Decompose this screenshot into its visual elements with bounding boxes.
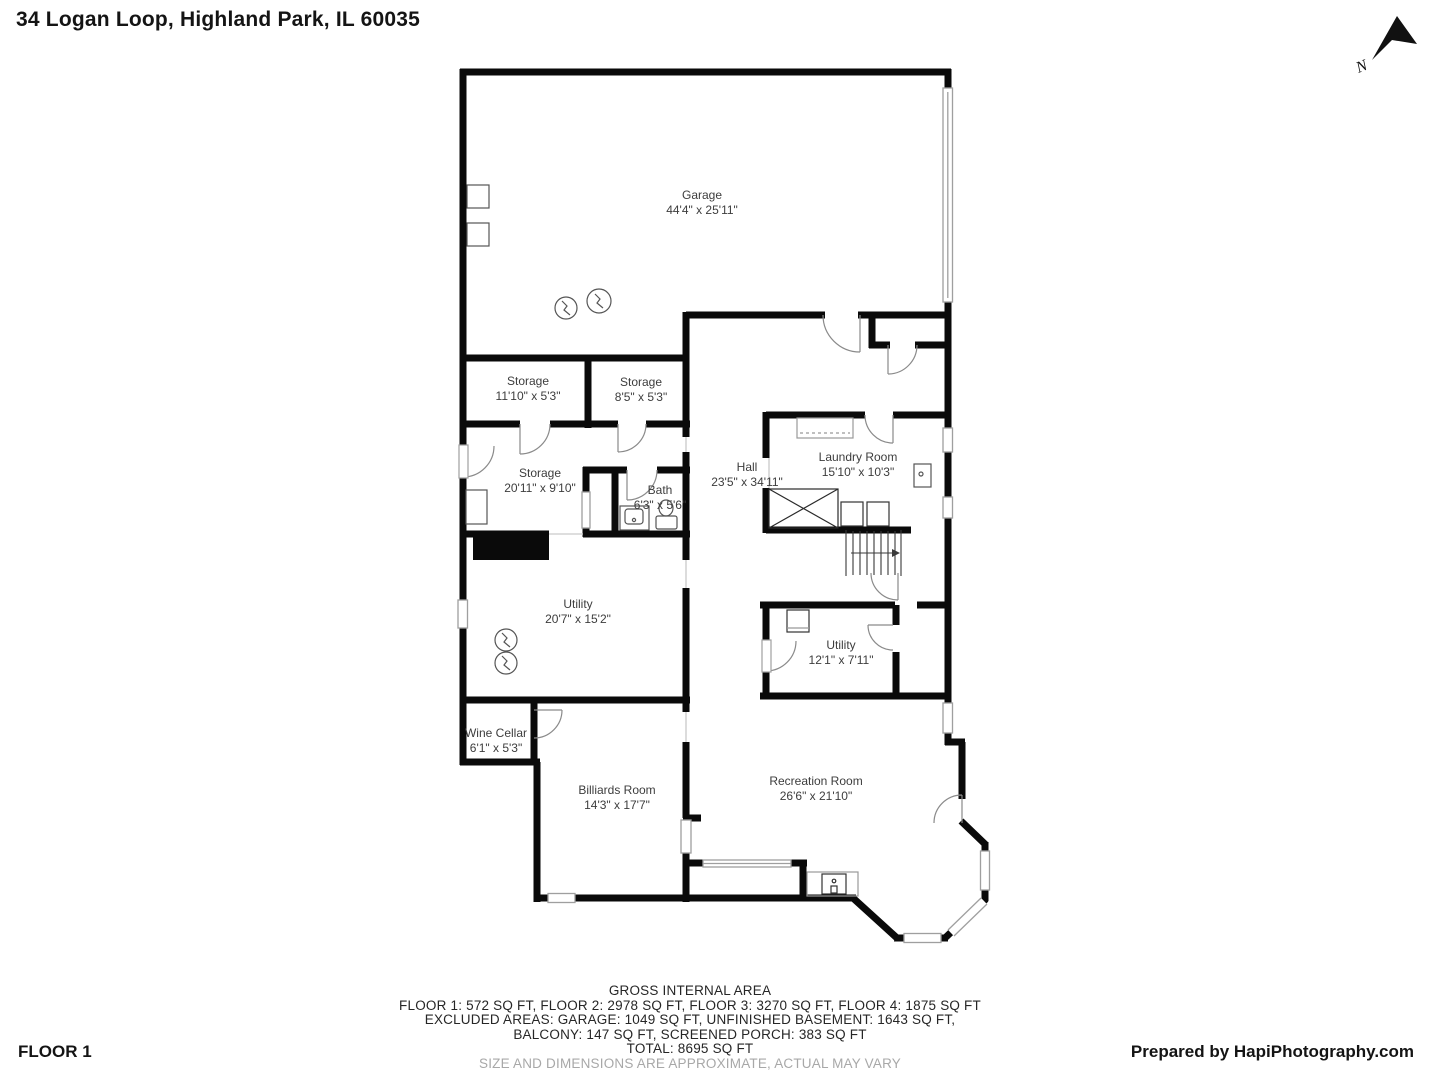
walls [460,69,986,938]
door-laundry [865,415,893,443]
room-label-wine-cellar: Wine Cellar [465,726,527,740]
door-wine-cellar [534,710,562,738]
window [981,851,990,890]
door-storage-2 [618,424,646,452]
area-summary-title: GROSS INTERNAL AREA [90,984,1290,999]
laundry-counter [797,418,853,438]
door-storage-1 [520,424,550,454]
room-label-laundry: Laundry Room [819,450,898,464]
stairs-direction-arrow [892,549,900,557]
staircase [846,530,901,576]
room-labels: Garage 44'4" x 25'11" Storage 11'10" x 5… [465,188,897,812]
room-dims-garage: 44'4" x 25'11" [666,203,738,217]
room-label-utility-2: Utility [826,638,855,652]
room-label-billiards: Billiards Room [578,783,655,797]
area-summary-total: TOTAL: 8695 SQ FT [90,1042,1290,1057]
floor-label: FLOOR 1 [18,1042,92,1062]
door-garage-hall [823,315,860,352]
room-dims-recreation: 26'6" x 21'10" [780,789,853,803]
garage-post [467,223,489,246]
dryer [867,502,889,526]
laundry-hatch [769,489,838,528]
closet-opening [582,492,590,528]
room-dims-storage-1: 11'10" x 5'3" [496,389,561,403]
window [943,703,953,733]
window [548,894,575,903]
wet-bar [807,872,858,896]
room-label-recreation: Recreation Room [769,774,862,788]
room-label-hall: Hall [737,460,758,474]
shelf-unit [466,490,487,524]
room-dims-utility-1: 20'7" x 15'2" [545,612,611,626]
pocket-door [681,820,691,853]
door-vestibule [888,345,917,374]
door-leaf [762,640,771,672]
door-leaf [459,445,468,478]
area-summary-disclaimer: SIZE AND DIMENSIONS ARE APPROXIMATE, ACT… [90,1057,1290,1072]
room-dims-wine-cellar: 6'1" x 5'3" [470,741,522,755]
room-label-storage-3: Storage [519,466,561,480]
credit: Prepared by HapiPhotography.com [1131,1042,1414,1062]
area-summary-excluded-2: BALCONY: 147 SQ FT, SCREENED PORCH: 383 … [90,1028,1290,1043]
area-summary-floors: FLOOR 1: 572 SQ FT, FLOOR 2: 2978 SQ FT,… [90,999,1290,1014]
door-recreation [934,795,962,823]
north-label: N [1353,57,1371,78]
area-summary-excluded-1: EXCLUDED AREAS: GARAGE: 1049 SQ FT, UNFI… [90,1013,1290,1028]
garage-post [467,185,489,208]
room-dims-billiards: 14'3" x 17'7" [584,798,650,812]
room-dims-hall: 23'5" x 34'11" [711,475,783,489]
room-label-garage: Garage [682,188,722,202]
room-dims-storage-3: 20'11" x 9'10" [504,481,576,495]
chimney-block [473,534,549,560]
window [904,934,941,943]
appliance [787,610,809,632]
room-label-bath: Bath [648,483,673,497]
thresholds [549,91,948,742]
washer [841,502,863,526]
window [943,497,953,518]
room-dims-bath: 6'3" x 5'6" [634,498,686,512]
floor-plan-canvas: Garage 44'4" x 25'11" Storage 11'10" x 5… [0,0,1440,1080]
room-label-utility-1: Utility [563,597,592,611]
window [458,600,468,628]
room-label-storage-2: Storage [620,375,662,389]
bay-diagonal-window [948,898,987,936]
room-dims-utility-2: 12'1" x 7'11" [809,653,874,667]
north-arrow-icon: N [1353,16,1417,77]
room-dims-storage-2: 8'5" x 5'3" [615,390,667,404]
door-stairs [871,573,898,600]
room-label-storage-1: Storage [507,374,549,388]
window [943,428,953,452]
area-summary: GROSS INTERNAL AREA FLOOR 1: 572 SQ FT, … [90,984,1290,1072]
room-dims-laundry: 15'10" x 10'3" [822,465,895,479]
laundry-sink [914,464,931,487]
door-utility-closet [868,625,893,650]
